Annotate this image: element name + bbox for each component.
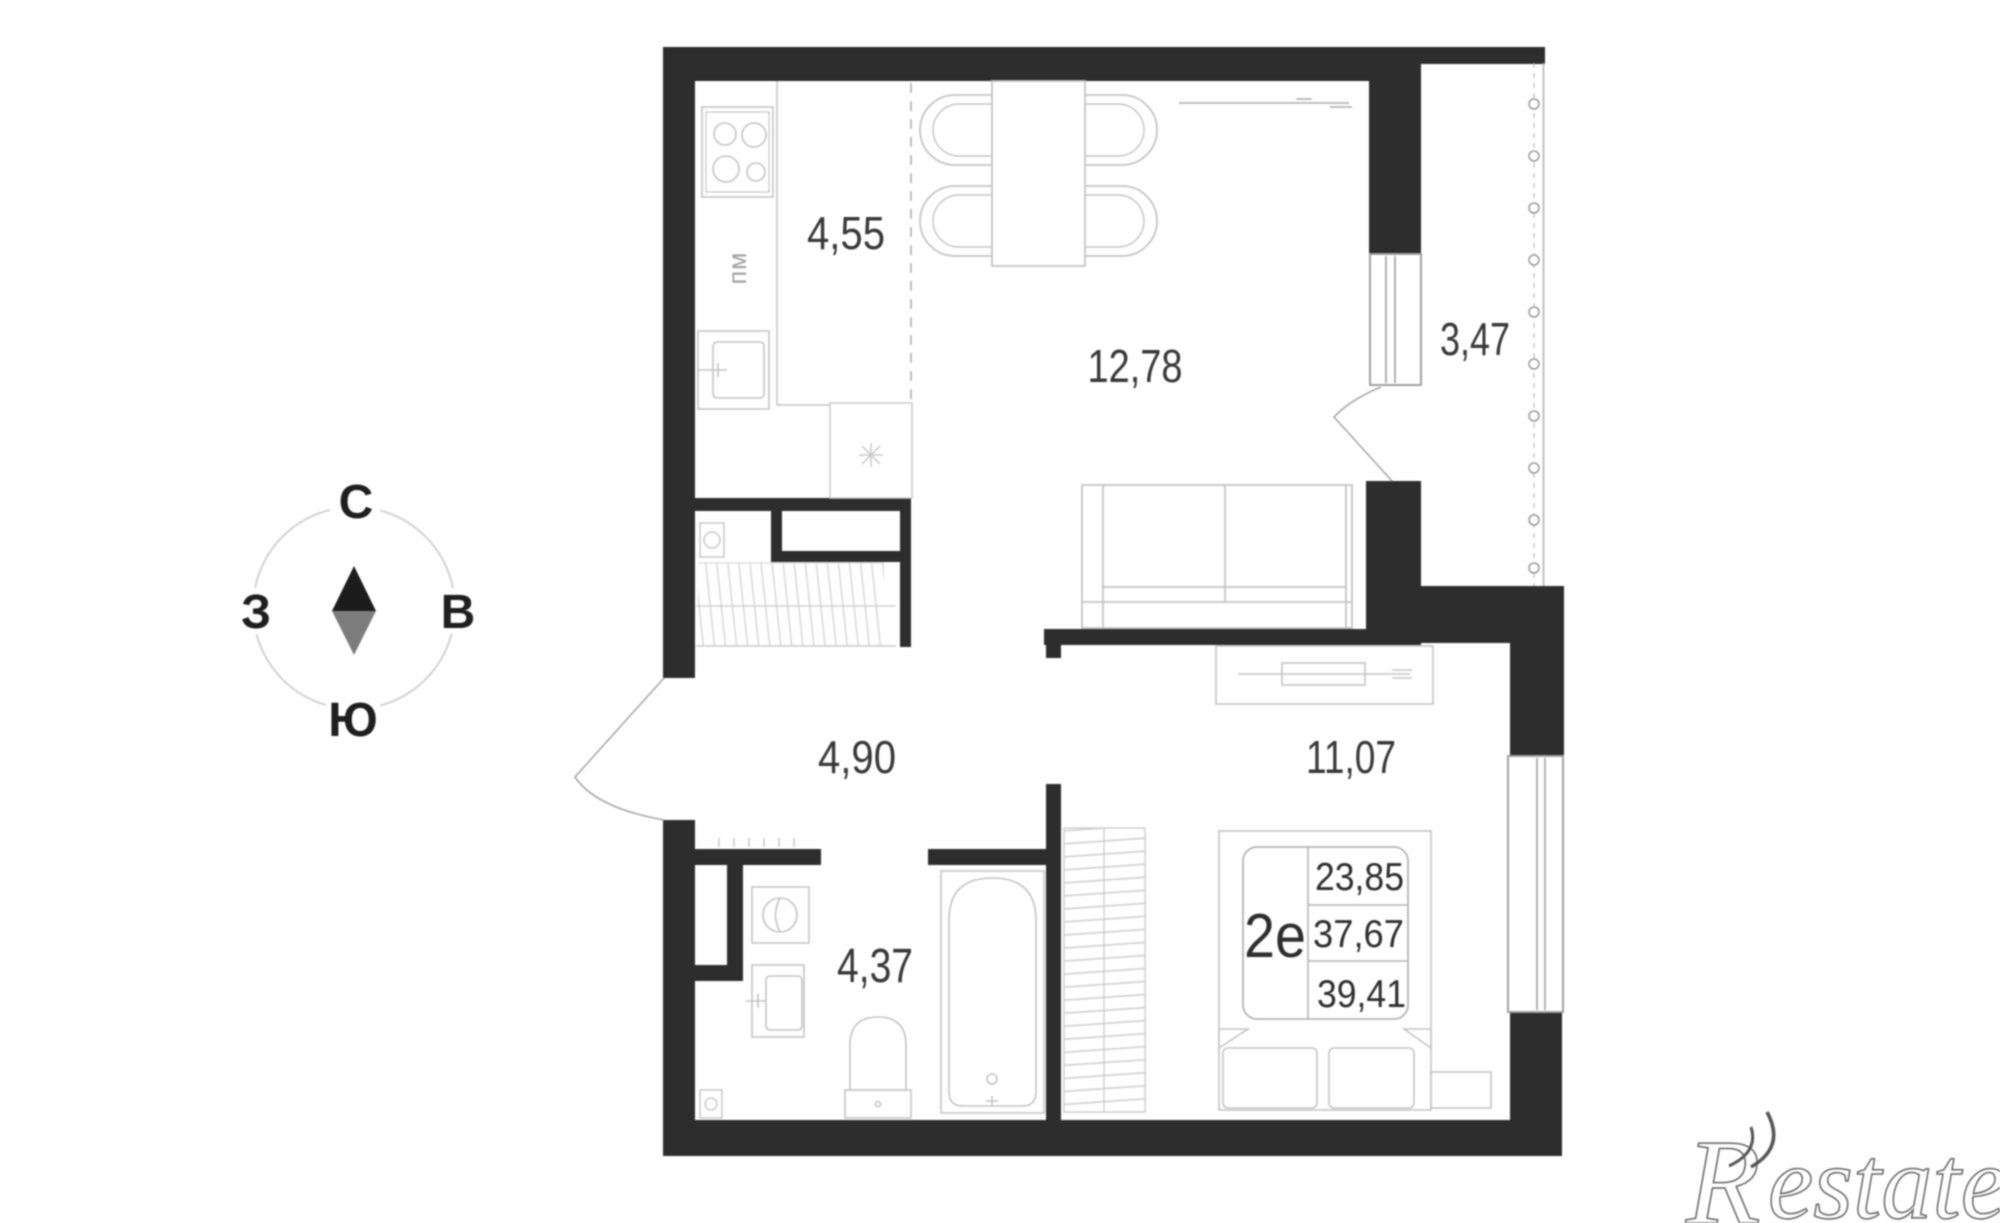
svg-text:4,90: 4,90 — [818, 731, 896, 783]
svg-text:3,47: 3,47 — [1440, 313, 1510, 365]
svg-text:2е: 2е — [1244, 902, 1306, 971]
svg-text:З: З — [241, 586, 271, 639]
svg-text:Ю: Ю — [328, 694, 378, 747]
svg-text:4,55: 4,55 — [807, 207, 885, 259]
svg-text:R: R — [1685, 1115, 1761, 1223]
svg-text:В: В — [441, 586, 476, 639]
svg-text:11,07: 11,07 — [1306, 731, 1396, 783]
svg-text:23,85: 23,85 — [1315, 856, 1404, 899]
svg-text:С: С — [339, 476, 374, 529]
svg-text:37,67: 37,67 — [1313, 913, 1404, 956]
svg-text:estate: estate — [1768, 1124, 2000, 1223]
svg-text:12,78: 12,78 — [1088, 340, 1183, 392]
svg-text:39,41: 39,41 — [1317, 973, 1406, 1016]
svg-text:4,37: 4,37 — [837, 940, 913, 993]
svg-text:пм: пм — [724, 252, 752, 285]
